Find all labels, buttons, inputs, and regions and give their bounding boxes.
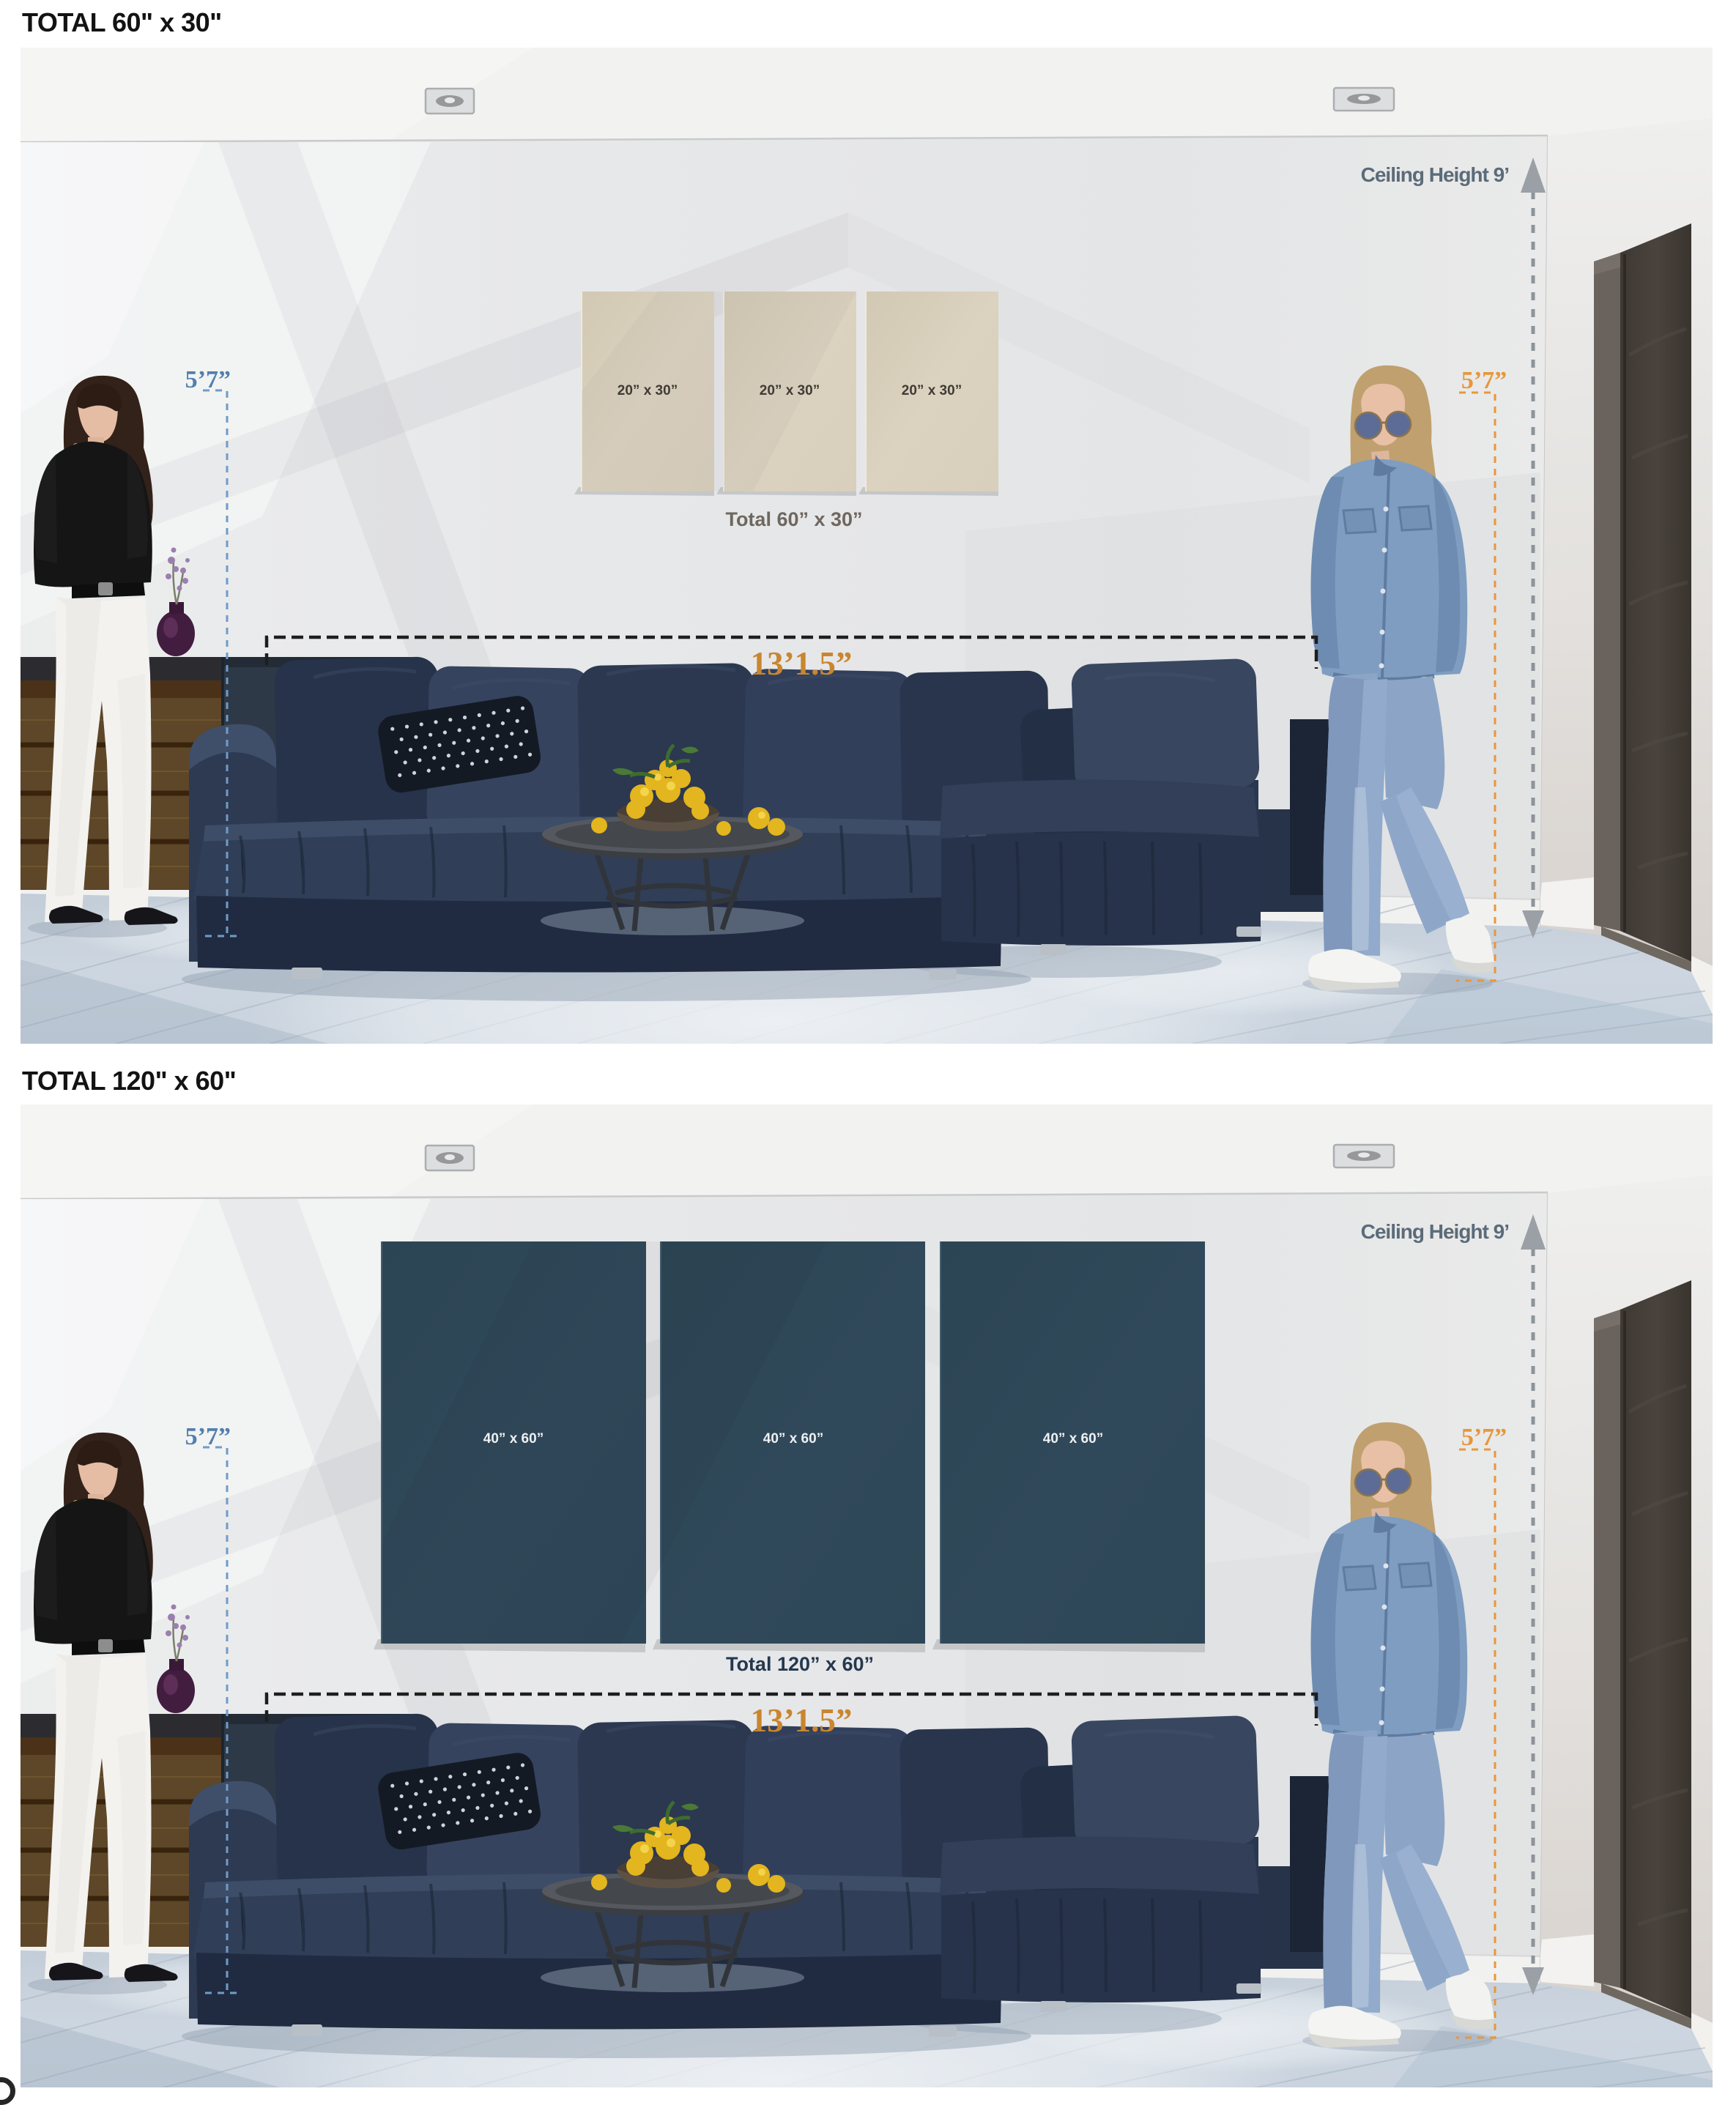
svg-text:Total 120” x 60”: Total 120” x 60” bbox=[726, 1653, 874, 1675]
svg-text:20” x 30”: 20” x 30” bbox=[617, 383, 678, 398]
svg-text:40” x 60”: 40” x 60” bbox=[763, 1431, 823, 1447]
svg-text:20” x 30”: 20” x 30” bbox=[760, 383, 820, 398]
svg-text:20” x 30”: 20” x 30” bbox=[902, 383, 962, 398]
svg-text:40” x 60”: 40” x 60” bbox=[1043, 1431, 1103, 1447]
svg-text:Total 60” x 30”: Total 60” x 30” bbox=[725, 508, 862, 530]
svg-text:40” x 60”: 40” x 60” bbox=[483, 1431, 544, 1447]
